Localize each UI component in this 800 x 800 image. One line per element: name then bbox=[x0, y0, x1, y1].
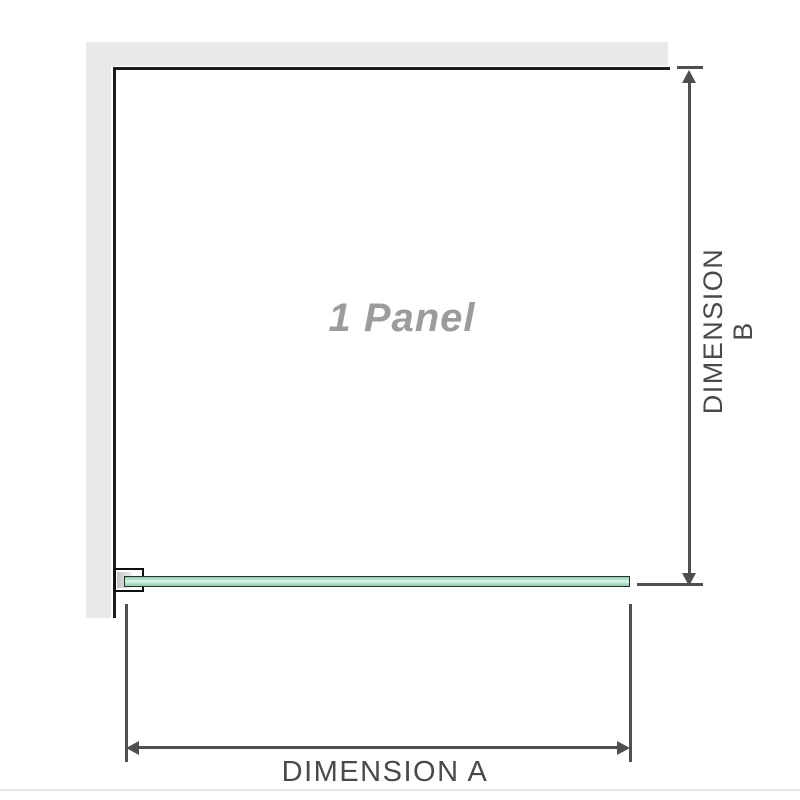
wall-left bbox=[86, 42, 111, 618]
dimension-a-right-extension bbox=[629, 604, 632, 762]
bottom-divider bbox=[0, 789, 800, 791]
glass-panel-top-view bbox=[124, 576, 630, 587]
dimension-b-label: DIMENSION B bbox=[698, 241, 728, 421]
arrow-right-icon bbox=[617, 741, 630, 755]
dimension-a-line bbox=[138, 746, 618, 749]
wall-top bbox=[86, 42, 668, 66]
panel-outline-top bbox=[113, 67, 670, 70]
dimension-a-left-extension bbox=[125, 604, 128, 762]
arrow-up-icon bbox=[682, 70, 696, 83]
dimension-a-label: DIMENSION A bbox=[270, 756, 500, 788]
arrow-down-icon bbox=[682, 573, 696, 586]
dimension-b-line bbox=[688, 80, 691, 576]
panel-count-label: 1 Panel bbox=[252, 294, 552, 342]
arrow-left-icon bbox=[126, 741, 139, 755]
dimension-b-top-tick bbox=[677, 66, 703, 69]
panel-outline-left bbox=[113, 67, 116, 618]
product-dimension-diagram: 1 Panel DIMENSION B DIMENSION A bbox=[0, 0, 800, 800]
